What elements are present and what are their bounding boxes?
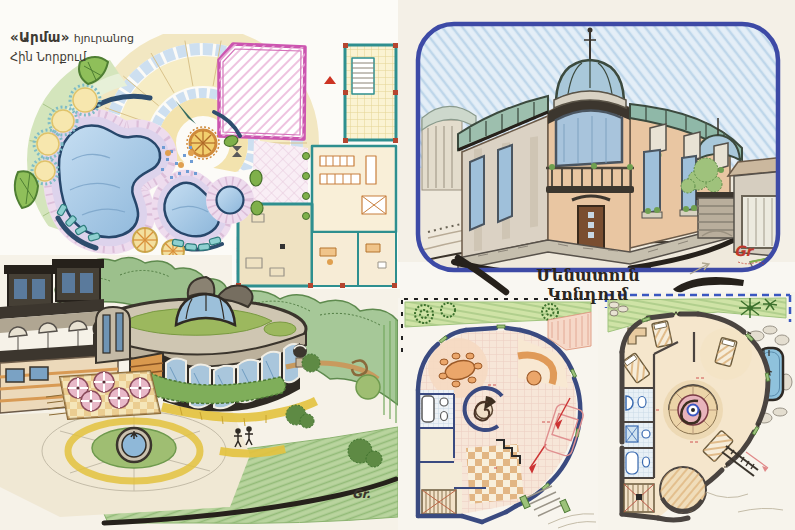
page-title: «Արմա»հյուրանոց [10,26,134,48]
signature-gr-dark: Gr. [352,487,371,501]
round-pool [217,187,244,214]
signature-gr-red: Gr [734,243,754,259]
scanned-architecture-collage: Gr. [0,0,795,530]
bathrooms [622,388,654,478]
mansion-drawing: Gr [398,0,795,300]
checker-floor [466,444,524,504]
page-subtitle: Հին Նորքում [10,50,134,66]
panel-floor-plan-upper [598,292,795,530]
spiral-staircase-2 [669,386,717,434]
round-terrace [660,467,706,513]
round-building-drawing: Gr. [0,255,400,530]
upper-plan-drawing [598,292,795,530]
ink-swoosh-right [673,277,744,292]
panel-round-building: Gr. [0,255,400,530]
stair-block [422,490,456,514]
caption-mansion: Մենատուն Կոնդում [504,266,672,304]
panel-floor-plan-ground [398,298,600,530]
title-block: «Արմա»հյուրանոց Հին Նորքում [10,26,134,65]
ground-plan-drawing [398,298,600,530]
panel-mansion: Gr Մենատուն Կոնդում [398,0,795,300]
stair-block-2 [624,484,654,512]
